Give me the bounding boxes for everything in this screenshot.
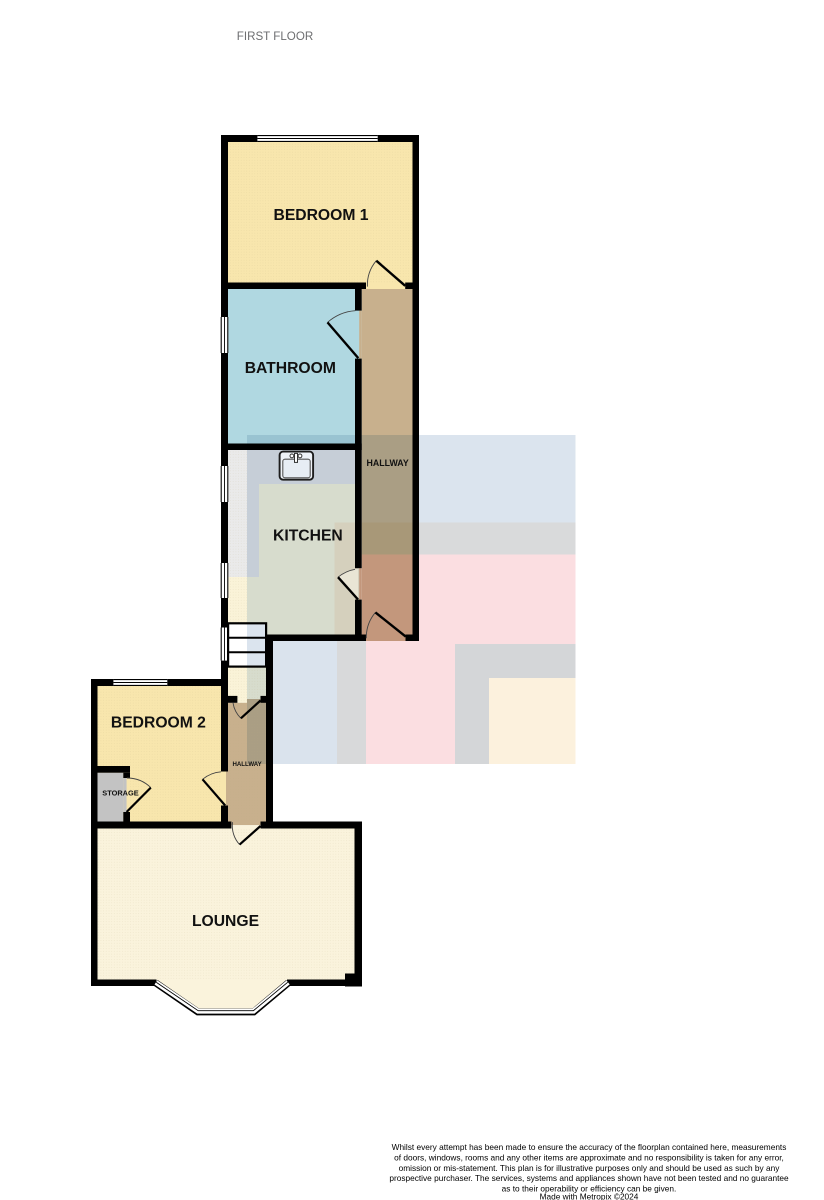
svg-text:Made with Metropix ©2024: Made with Metropix ©2024 <box>540 1192 639 1200</box>
svg-text:STORAGE: STORAGE <box>102 789 138 798</box>
svg-text:HALLWAY: HALLWAY <box>232 761 261 768</box>
svg-text:LOUNGE: LOUNGE <box>192 913 259 930</box>
svg-text:BEDROOM 2: BEDROOM 2 <box>111 715 206 732</box>
svg-text:prospective purchaser. The ser: prospective purchaser. The services, sys… <box>389 1173 789 1183</box>
svg-text:BATHROOM: BATHROOM <box>245 360 336 377</box>
svg-text:HALLWAY: HALLWAY <box>366 458 408 468</box>
svg-text:of doors, windows, rooms and a: of doors, windows, rooms and any other i… <box>394 1152 784 1162</box>
svg-text:FIRST FLOOR: FIRST FLOOR <box>237 30 313 43</box>
svg-text:BEDROOM 1: BEDROOM 1 <box>273 207 368 224</box>
svg-text:Whilst every attempt has been: Whilst every attempt has been made to en… <box>392 1142 787 1152</box>
svg-text:omission or mis-statement. Thi: omission or mis-statement. This plan is … <box>399 1163 781 1173</box>
svg-text:KITCHEN: KITCHEN <box>273 527 343 544</box>
